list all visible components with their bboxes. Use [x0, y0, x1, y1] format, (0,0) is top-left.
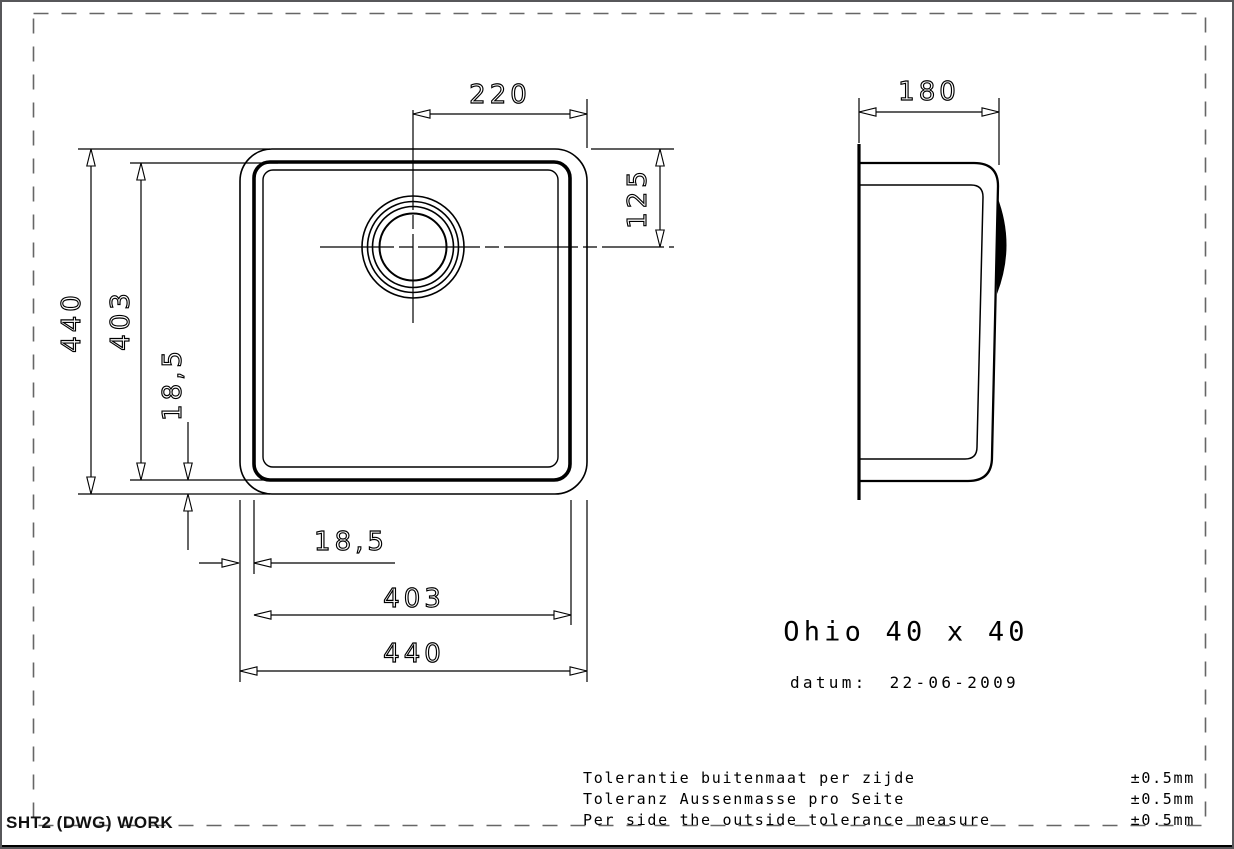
- tolerance-value-nl: ±0.5mm: [1131, 768, 1195, 789]
- tolerance-label-nl: Tolerantie buitenmaat per zijde: [583, 768, 916, 789]
- bottom-bar: [2, 845, 1234, 849]
- dim-text-rim-bottom: 18,5: [314, 527, 388, 557]
- tolerance-value-en: ±0.5mm: [1131, 810, 1195, 831]
- tolerance-row: Tolerantie buitenmaat per zijde ±0.5mm: [583, 768, 1195, 789]
- sheet-label: SHT2 (DWG) WORK: [6, 813, 173, 833]
- dim-text-rim-left: 18,5: [158, 347, 188, 421]
- drawing-title: Ohio 40 x 40: [783, 617, 1028, 648]
- dim-text-drain-offset-x: 220: [469, 80, 531, 110]
- bowl-top-edge: [254, 162, 570, 480]
- side-body-inner-line: [860, 185, 983, 459]
- sheet-frame-dashed: [34, 14, 1206, 826]
- dim-text-bowl-width: 403: [383, 584, 445, 614]
- tolerance-value-de: ±0.5mm: [1131, 789, 1195, 810]
- dim-text-outer-width: 440: [383, 639, 445, 669]
- dim-text-outer-height: 440: [57, 291, 87, 353]
- date-line: datum: 22-06-2009: [790, 673, 1019, 692]
- dimension-arrows: [87, 108, 999, 675]
- dim-text-depth: 180: [898, 77, 960, 107]
- date-label: datum:: [790, 673, 868, 692]
- dim-text-bowl-height: 403: [106, 289, 136, 351]
- tolerance-row: Toleranz Aussenmasse pro Seite ±0.5mm: [583, 789, 1195, 810]
- date-value: 22-06-2009: [890, 673, 1019, 692]
- tolerance-label-de: Toleranz Aussenmasse pro Seite: [583, 789, 905, 810]
- drawing-sheet: 220 125 440 403 18,5 18,5 403 440 180 Oh…: [0, 0, 1234, 849]
- tolerance-label-en: Per side the outside tolerance measure: [583, 810, 991, 831]
- tolerance-row: Per side the outside tolerance measure ±…: [583, 810, 1195, 831]
- tolerance-notes: Tolerantie buitenmaat per zijde ±0.5mm T…: [583, 768, 1195, 831]
- top-view: [240, 110, 674, 494]
- dim-text-drain-offset-y: 125: [623, 167, 653, 229]
- side-view: [859, 144, 1007, 500]
- mounting-clip: [997, 196, 1007, 294]
- cad-geometry: [2, 2, 1234, 849]
